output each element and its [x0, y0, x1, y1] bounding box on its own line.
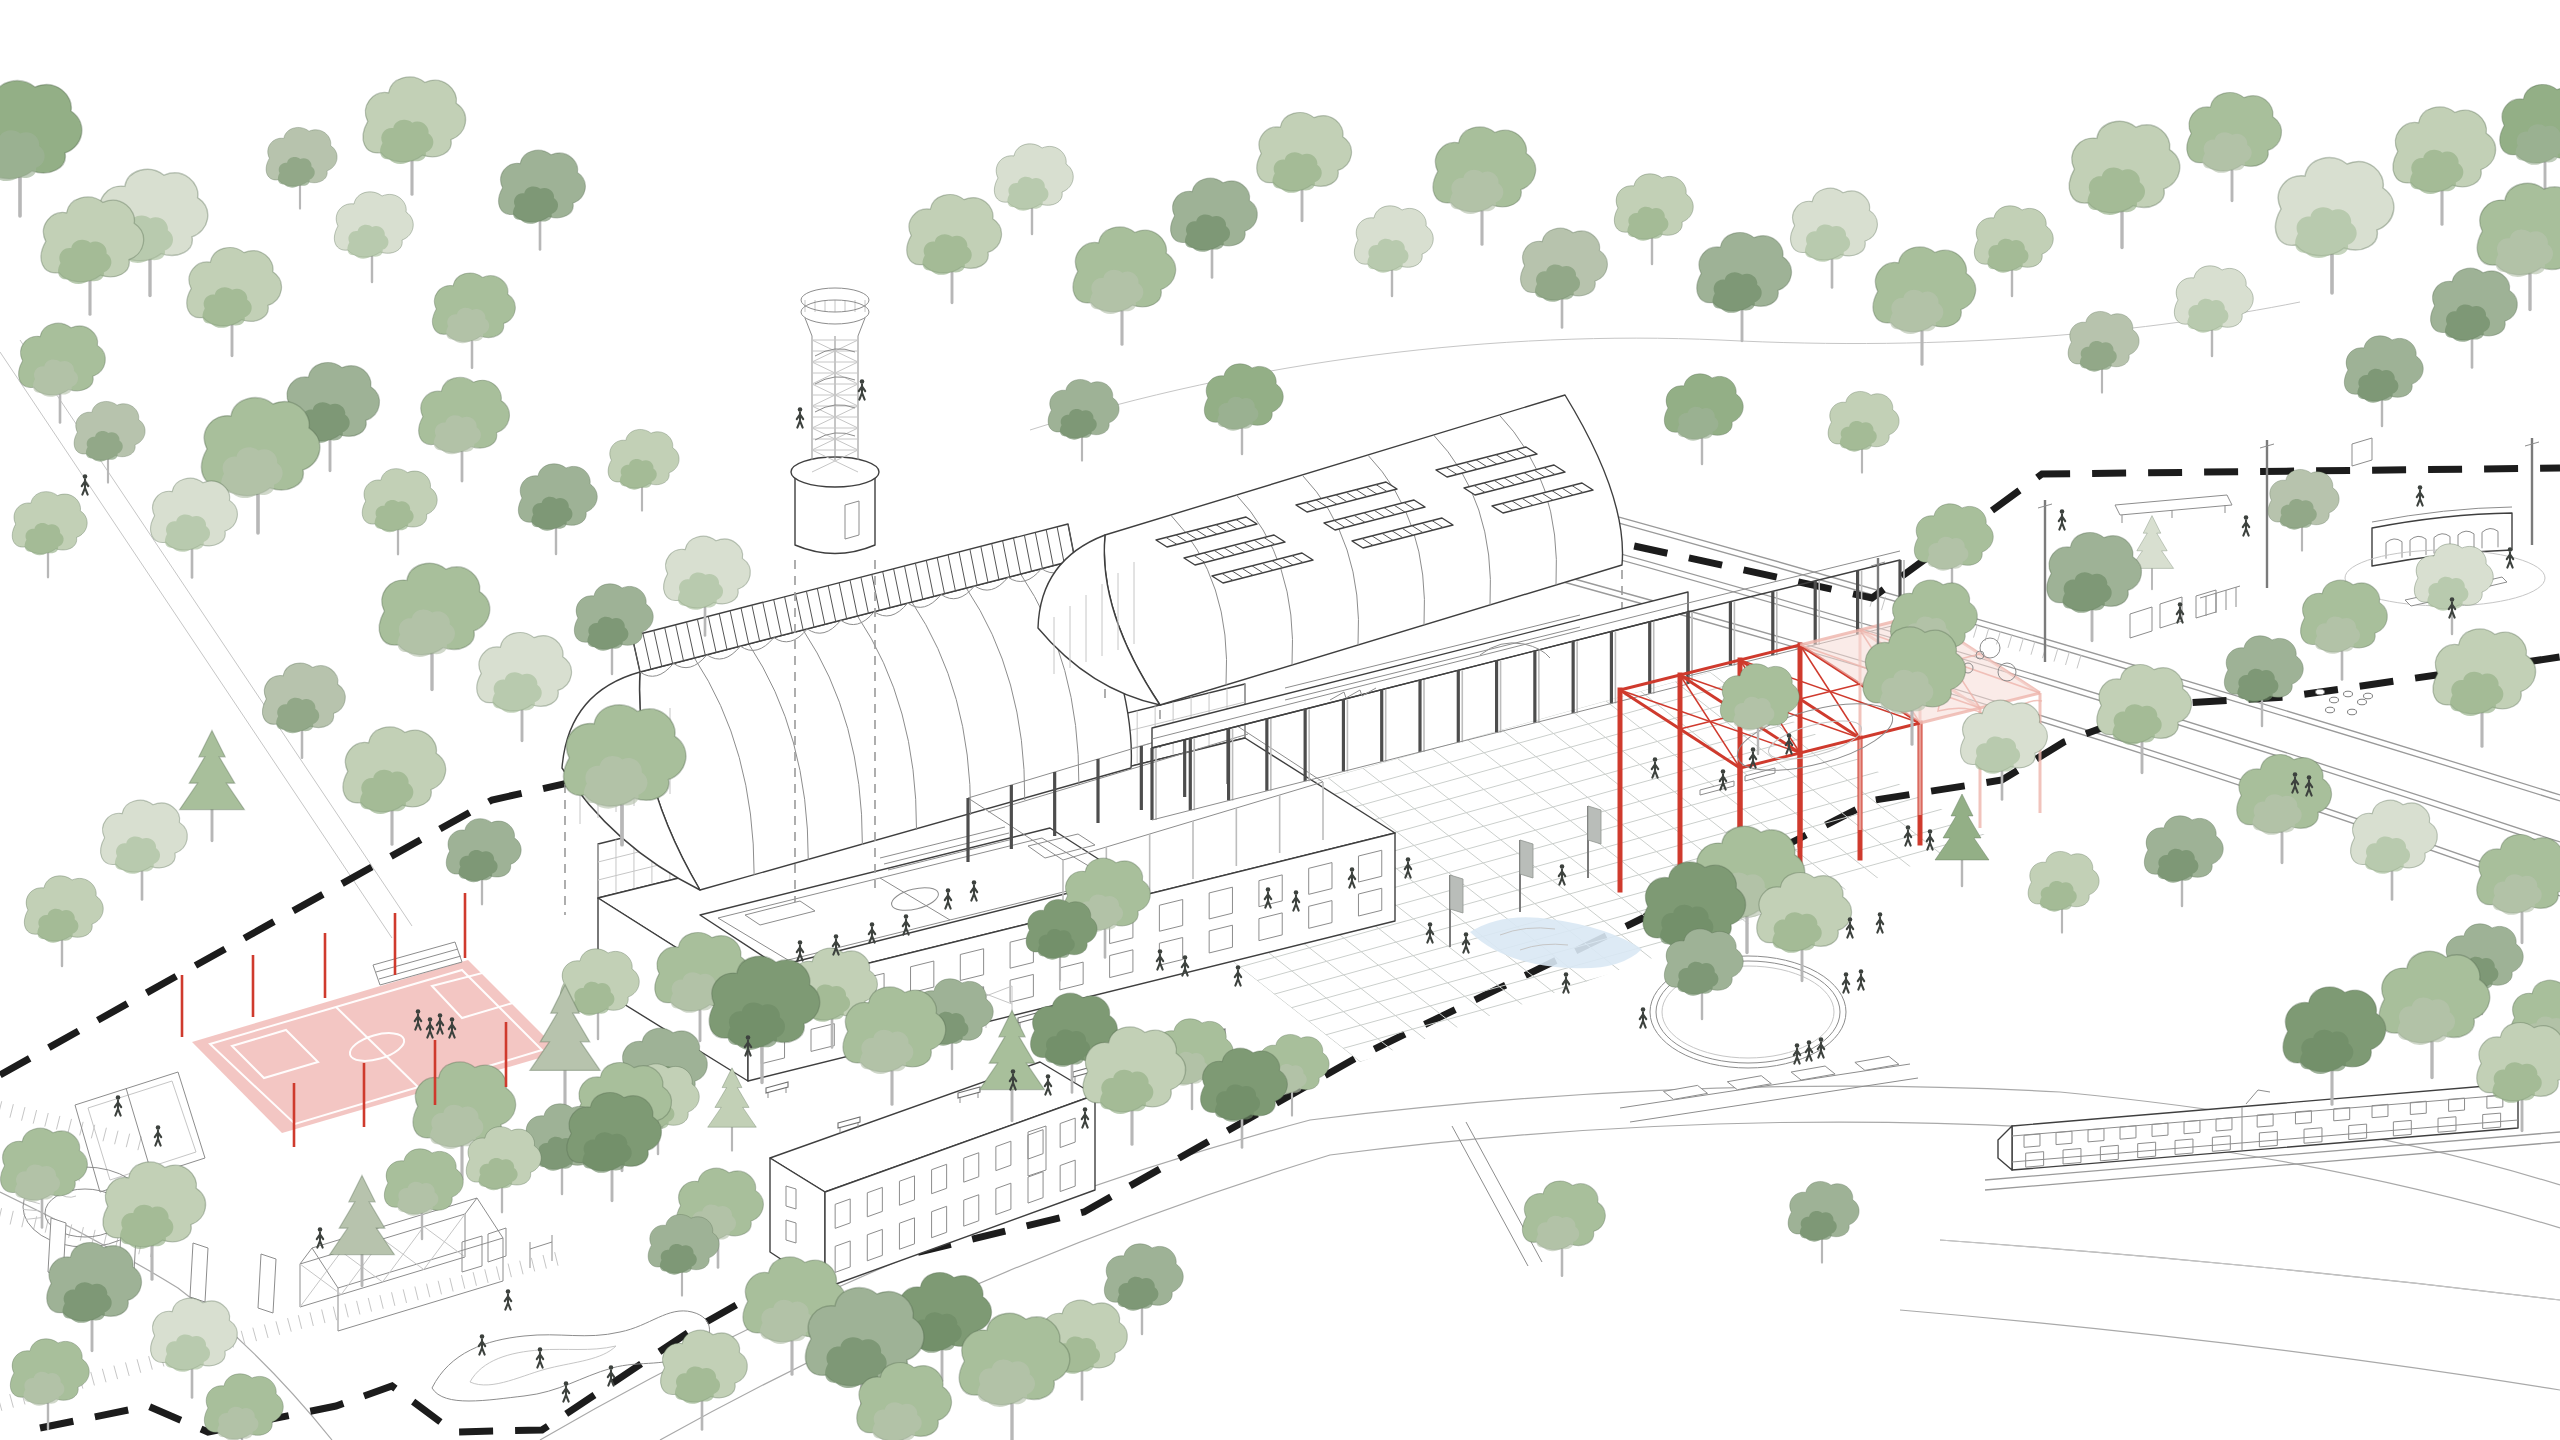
boardwalk-sleeper [473, 1272, 476, 1286]
boardwalk-sleeper [380, 1295, 383, 1309]
person-head [506, 1289, 511, 1294]
tree [1521, 228, 1608, 327]
tree [2379, 951, 2489, 1077]
boardwalk-sleeper [1881, 597, 1885, 610]
tree [1354, 206, 1433, 296]
tree [47, 1243, 142, 1351]
tree [1757, 873, 1852, 981]
bowl-tick [26, 1218, 41, 1220]
tree [151, 1298, 238, 1397]
boardwalk-sleeper [137, 1359, 141, 1373]
boardwalk-sleeper [357, 1301, 360, 1315]
person-figure [1877, 912, 1883, 932]
boardwalk-sleeper [543, 1255, 546, 1269]
person-figure [1463, 932, 1469, 952]
person-head [438, 1013, 443, 1018]
tree [2301, 580, 2388, 679]
banner-flag [1450, 875, 1463, 913]
person-head [83, 474, 88, 479]
person-head [1046, 1074, 1051, 1079]
person-head [904, 914, 909, 919]
person-head [1807, 1040, 1812, 1045]
tree [518, 464, 597, 554]
person-body [505, 1294, 511, 1309]
person-head [946, 888, 951, 893]
person-head [1464, 932, 1469, 937]
long-bench [2115, 495, 2232, 523]
tree [2028, 851, 2099, 932]
boardwalk-sleeper [102, 1369, 106, 1383]
person-head [2244, 515, 2249, 520]
person-head [2293, 772, 2298, 777]
axonometric-site-illustration [0, 0, 2560, 1440]
tree [204, 1374, 283, 1440]
person-head [2450, 597, 2455, 602]
person-body [2243, 520, 2249, 535]
boardwalk-sleeper [0, 1397, 2, 1411]
person-head [1787, 733, 1792, 738]
person-head [1653, 757, 1658, 762]
boardwalk-sleeper [91, 1372, 95, 1386]
boardwalk-sleeper [520, 1261, 523, 1275]
person-body [1652, 762, 1658, 777]
tree-canopy [330, 1175, 395, 1254]
person-figure [1905, 825, 1911, 845]
boardwalk-sleeper [10, 1211, 13, 1225]
person-head [1844, 972, 1849, 977]
boardwalk-sleeper [103, 1128, 106, 1142]
boardwalk-sleeper [276, 1321, 280, 1335]
tree [2351, 800, 2438, 899]
rail-line [1505, 522, 2560, 842]
boardwalk-sleeper [508, 1264, 511, 1278]
tree [2068, 311, 2139, 392]
person-head [2307, 775, 2312, 780]
boardwalk-sleeper [33, 1110, 36, 1124]
footbridge [1452, 1122, 1542, 1266]
platform-shelter [1664, 1085, 1708, 1099]
tree [2276, 158, 2394, 293]
person-head [1641, 1007, 1646, 1012]
tree [1828, 391, 1899, 472]
stepping-stone [2358, 699, 2367, 705]
person-figure [505, 1289, 511, 1309]
person-head [1406, 857, 1411, 862]
tree [1201, 1048, 1288, 1147]
tree [262, 663, 345, 758]
tree [343, 727, 446, 844]
x-brace [300, 1252, 341, 1308]
person-head [1428, 922, 1433, 927]
person-body [1877, 917, 1883, 932]
boardwalk-sleeper [298, 1315, 301, 1329]
tree [101, 800, 188, 899]
person-head [416, 1009, 421, 1014]
person-figure [1818, 1037, 1824, 1057]
tree [648, 1214, 719, 1295]
platform-shelter [1855, 1056, 1899, 1070]
purlin [1800, 684, 1860, 699]
tree [180, 730, 245, 840]
tree [2069, 121, 2179, 247]
person-head [116, 1095, 121, 1100]
person-figure [115, 1095, 121, 1115]
platform-shelter [1791, 1066, 1835, 1080]
bench-seat [838, 1117, 860, 1128]
pantograph [2246, 1090, 2270, 1104]
person-head [972, 880, 977, 885]
site-drawing-canvas [0, 0, 2560, 1440]
person-figure [1563, 972, 1569, 992]
tree [363, 77, 466, 194]
boardwalk-sleeper [461, 1275, 464, 1289]
tree [2047, 533, 2142, 641]
person-figure [1427, 922, 1433, 942]
tree [1664, 374, 1743, 464]
boardwalk-sleeper [310, 1312, 313, 1326]
station-platform [1452, 1056, 1918, 1266]
person-figure [608, 1365, 614, 1385]
person-head [1183, 955, 1188, 960]
boardwalk-sleeper [2065, 652, 2069, 665]
person-body [2059, 514, 2065, 529]
person-head [870, 922, 875, 927]
boardwalk-sleeper [322, 1309, 325, 1323]
person-figure [1640, 1007, 1646, 1027]
tree [907, 195, 1002, 303]
person-body [2507, 552, 2513, 567]
tree [1961, 700, 2048, 799]
tree [2431, 268, 2518, 367]
person-figure [1927, 829, 1933, 849]
boardwalk-sleeper [288, 1318, 292, 1332]
tree [1204, 364, 1283, 454]
person-head [1083, 1107, 1088, 1112]
tree [19, 323, 106, 422]
person-head [2060, 509, 2065, 514]
person-figure [82, 474, 88, 494]
boardwalk-sleeper [68, 1119, 71, 1133]
person-head [746, 1035, 751, 1040]
boardwalk-sleeper [22, 1107, 25, 1121]
person-body [1463, 937, 1469, 952]
person-head [1236, 965, 1241, 970]
tree [1, 1128, 88, 1227]
banner-flag [1520, 840, 1533, 878]
bench-seat [766, 1082, 788, 1093]
tree [2097, 665, 2192, 773]
person-body [1806, 1045, 1812, 1060]
tree [41, 197, 144, 314]
person-body [1235, 970, 1241, 985]
tree [419, 377, 510, 481]
tree [1664, 929, 1743, 1019]
tree [12, 492, 87, 578]
stepping-stone [2348, 709, 2357, 715]
boardwalk-sleeper [531, 1258, 534, 1272]
person-body [115, 1100, 121, 1115]
road-edge [1900, 1310, 2560, 1390]
x-brace [424, 1214, 465, 1270]
person-head [538, 1347, 543, 1352]
tree [2237, 755, 2332, 863]
person-body [859, 384, 865, 399]
person-body [1563, 977, 1569, 992]
boardwalk-sleeper [2054, 648, 2058, 661]
tree [151, 478, 238, 577]
person-head [1819, 1037, 1824, 1042]
boardwalk-sleeper [2077, 655, 2081, 668]
person-figure [1843, 972, 1849, 992]
tree [432, 273, 515, 368]
person-figure [1235, 965, 1241, 985]
person-figure [1405, 857, 1411, 877]
tree [1522, 1181, 1605, 1276]
person-head [450, 1017, 455, 1022]
tree [384, 1149, 463, 1239]
person-body [1927, 834, 1933, 849]
tree [661, 1330, 748, 1429]
banner-flag [1588, 806, 1601, 844]
person-head [1751, 747, 1756, 752]
person-head [1878, 912, 1883, 917]
boardwalk-sleeper [450, 1278, 453, 1292]
play-circle [1980, 638, 2000, 658]
tree [477, 633, 572, 741]
person-head [1266, 887, 1271, 892]
boardwalk-sleeper [10, 1394, 14, 1408]
tree-canopy [180, 730, 245, 809]
tower-lattice [805, 300, 865, 472]
person-head [2178, 602, 2183, 607]
person-body [608, 1370, 614, 1385]
person-head [1859, 969, 1864, 974]
boardwalk-sleeper [56, 1116, 59, 1130]
boardwalk-sleeper [345, 1304, 348, 1318]
person-figure [1652, 757, 1658, 777]
person-head [428, 1017, 433, 1022]
person-body [1858, 974, 1864, 989]
boardwalk-sleeper [264, 1324, 268, 1338]
tree [567, 1093, 662, 1201]
tree [1720, 664, 1799, 754]
greenhouse [300, 1198, 503, 1331]
person-body [797, 412, 803, 427]
person-head [564, 1381, 569, 1386]
tree [608, 429, 679, 510]
tree [2414, 544, 2493, 634]
tree [2283, 987, 2386, 1104]
tree [1433, 127, 1536, 244]
tree [10, 1339, 89, 1429]
tree [1083, 1027, 1186, 1144]
person-head [318, 1227, 323, 1232]
person-head [1350, 867, 1355, 872]
boardwalk-sleeper [0, 1101, 2, 1115]
person-head [1011, 1069, 1016, 1074]
person-figure [2059, 509, 2065, 529]
boardwalk-sleeper [2031, 641, 2035, 654]
boardwalk-sleeper [392, 1292, 395, 1306]
person-head [2508, 547, 2513, 552]
tree [379, 563, 489, 689]
tree [0, 81, 82, 216]
person-body [1640, 1012, 1646, 1027]
person-figure [859, 379, 865, 399]
stepping-stone [2326, 707, 2335, 713]
stepping-stone [2330, 697, 2339, 703]
tree [843, 987, 946, 1104]
person-head [2418, 485, 2423, 490]
panel-slab [190, 1243, 208, 1302]
person-head [798, 940, 803, 945]
calisthenics-left [462, 1228, 552, 1272]
boardwalk-sleeper [427, 1284, 430, 1298]
boardwalk-sleeper [2019, 638, 2023, 651]
tree [446, 819, 521, 905]
person-head [1158, 949, 1163, 954]
tree [1974, 206, 2053, 296]
person-head [1564, 972, 1569, 977]
person-body [479, 1339, 485, 1354]
person-head [480, 1334, 485, 1339]
tree [1171, 178, 1258, 277]
tree [1073, 227, 1176, 344]
person-head [1294, 890, 1299, 895]
person-figure [1559, 864, 1565, 884]
boardwalk-sleeper [333, 1307, 336, 1321]
person-figure [797, 407, 803, 427]
stepping-stone [2364, 693, 2373, 699]
person-figure [2417, 485, 2423, 505]
stepping-stone [2344, 691, 2353, 697]
small-building [770, 1062, 1095, 1288]
boardwalk-sleeper [415, 1287, 418, 1301]
boardwalk-sleeper [2008, 634, 2012, 647]
tree [2344, 336, 2423, 426]
tree [187, 248, 282, 356]
boardwalk-sleeper [438, 1281, 441, 1295]
boardwalk-sleeper [496, 1266, 499, 1280]
tree [24, 876, 103, 966]
boardwalk-sleeper [126, 1134, 129, 1148]
boardwalk-sleeper [149, 1356, 153, 1370]
boardwalk-sleeper [0, 1208, 2, 1222]
person-body [2417, 490, 2423, 505]
person-head [156, 1125, 161, 1130]
tree [994, 144, 1073, 234]
tree [2433, 629, 2536, 746]
tree [2144, 816, 2223, 906]
boardwalk-sleeper [45, 1113, 48, 1127]
tree [1791, 188, 1878, 287]
boardwalk-sleeper [115, 1131, 118, 1145]
tree [362, 469, 437, 555]
tree [266, 127, 337, 208]
person-body [537, 1352, 543, 1367]
tree [74, 401, 145, 482]
tree [1257, 113, 1352, 221]
person-head [860, 379, 865, 384]
tree [1873, 247, 1976, 364]
person-figure [1858, 969, 1864, 989]
person-body [1843, 977, 1849, 992]
train-nose [1998, 1126, 2012, 1170]
stepping-stones [2316, 689, 2373, 715]
person-head [834, 934, 839, 939]
boardwalk-sleeper [253, 1328, 257, 1342]
person-figure [155, 1125, 161, 1145]
stepping-stone [2316, 689, 2325, 695]
tree [1697, 233, 1792, 341]
boardwalk-sleeper [555, 1252, 558, 1266]
person-head [1906, 825, 1911, 830]
person-figure [2243, 515, 2249, 535]
bench [766, 1082, 788, 1098]
person-body [563, 1386, 569, 1401]
tree [334, 192, 413, 282]
person-head [1848, 917, 1853, 922]
tree [1048, 379, 1119, 460]
boardwalk-sleeper [10, 1104, 13, 1118]
person-head [1795, 1043, 1800, 1048]
footpath [1030, 338, 1720, 430]
water-feature [1470, 917, 1642, 968]
person-head [1928, 829, 1933, 834]
tree [2187, 93, 2282, 201]
platform-shelter [1727, 1076, 1771, 1090]
tree [2393, 107, 2496, 224]
tree [499, 150, 586, 249]
embankment-line [1940, 1240, 2560, 1300]
person-head [609, 1365, 614, 1370]
boardwalk-sleeper [125, 1362, 129, 1376]
tree [1614, 174, 1693, 264]
tree [959, 1313, 1069, 1439]
boardwalk-sleeper [485, 1269, 488, 1283]
person-head [1560, 864, 1565, 869]
boardwalk-sleeper [368, 1298, 371, 1312]
person-head [798, 407, 803, 412]
boardwalk-sleeper [114, 1366, 118, 1380]
tree [1863, 627, 1966, 744]
tree [1788, 1181, 1859, 1262]
tree [2268, 469, 2339, 550]
ground-markings-layer [1940, 1240, 2560, 1300]
platform-shelters [1664, 1056, 1899, 1099]
person-figure [317, 1227, 323, 1247]
person-head [1721, 769, 1726, 774]
shed-roof [1104, 395, 1622, 705]
panel-slab [258, 1254, 276, 1313]
road-edge [1940, 1240, 2560, 1300]
person-body [155, 1130, 161, 1145]
person-figure [479, 1334, 485, 1354]
tree [2500, 85, 2560, 193]
tree [2174, 266, 2253, 356]
boardwalk-sleeper [403, 1289, 406, 1303]
